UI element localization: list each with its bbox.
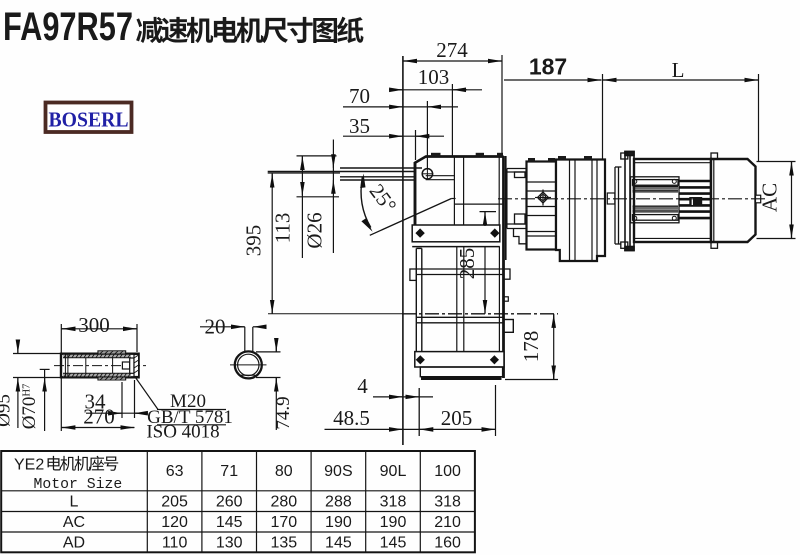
svg-text:145: 145 — [325, 535, 352, 552]
svg-text:70: 70 — [349, 84, 370, 108]
svg-text:145: 145 — [380, 535, 407, 552]
svg-text:AD: AD — [63, 535, 85, 552]
svg-text:274: 274 — [436, 38, 468, 62]
svg-text:210: 210 — [434, 514, 461, 531]
svg-text:80: 80 — [275, 463, 293, 480]
svg-text:285: 285 — [455, 248, 479, 280]
svg-text:35: 35 — [349, 114, 370, 138]
svg-text:20: 20 — [205, 315, 226, 339]
svg-text:300: 300 — [78, 313, 110, 337]
svg-text:YE2: YE2 — [14, 457, 44, 474]
svg-text:L: L — [70, 494, 79, 511]
svg-text:113: 113 — [271, 213, 295, 244]
svg-text:395: 395 — [242, 225, 266, 257]
svg-text:AC: AC — [63, 514, 85, 531]
svg-text:110: 110 — [162, 535, 188, 552]
svg-text:318: 318 — [434, 494, 461, 511]
svg-text:BOSERL: BOSERL — [49, 108, 129, 132]
svg-text:Ø26: Ø26 — [303, 212, 327, 248]
svg-text:288: 288 — [325, 494, 352, 511]
svg-text:103: 103 — [418, 65, 450, 89]
svg-text:187: 187 — [529, 54, 567, 80]
svg-text:120: 120 — [161, 514, 188, 531]
svg-text:4: 4 — [357, 374, 368, 398]
svg-text:190: 190 — [380, 514, 407, 531]
svg-text:130: 130 — [216, 535, 243, 552]
svg-text:135: 135 — [270, 535, 297, 552]
svg-text:205: 205 — [161, 494, 188, 511]
svg-text:205: 205 — [441, 406, 473, 430]
svg-text:Motor Size: Motor Size — [34, 477, 123, 493]
svg-text:100: 100 — [434, 463, 461, 480]
svg-text:Ø95: Ø95 — [0, 394, 15, 427]
svg-text:178: 178 — [519, 331, 543, 363]
svg-text:71: 71 — [220, 463, 238, 480]
svg-text:260: 260 — [216, 494, 243, 511]
svg-text:145: 145 — [216, 514, 243, 531]
svg-text:160: 160 — [434, 535, 461, 552]
svg-text:AC: AC — [758, 183, 782, 212]
svg-text:ISO 4018: ISO 4018 — [146, 422, 219, 443]
svg-text:318: 318 — [380, 494, 407, 511]
svg-text:L: L — [672, 58, 685, 82]
svg-text:90S: 90S — [324, 463, 352, 480]
svg-text:74.9: 74.9 — [273, 396, 294, 429]
svg-text:190: 190 — [325, 514, 352, 531]
svg-text:FA97R57: FA97R57 — [3, 5, 133, 49]
svg-text:48.5: 48.5 — [333, 406, 370, 430]
svg-text:270: 270 — [83, 405, 115, 429]
svg-text:90L: 90L — [380, 463, 407, 480]
svg-text:63: 63 — [166, 463, 184, 480]
svg-text:280: 280 — [270, 494, 297, 511]
svg-text:170: 170 — [270, 514, 297, 531]
